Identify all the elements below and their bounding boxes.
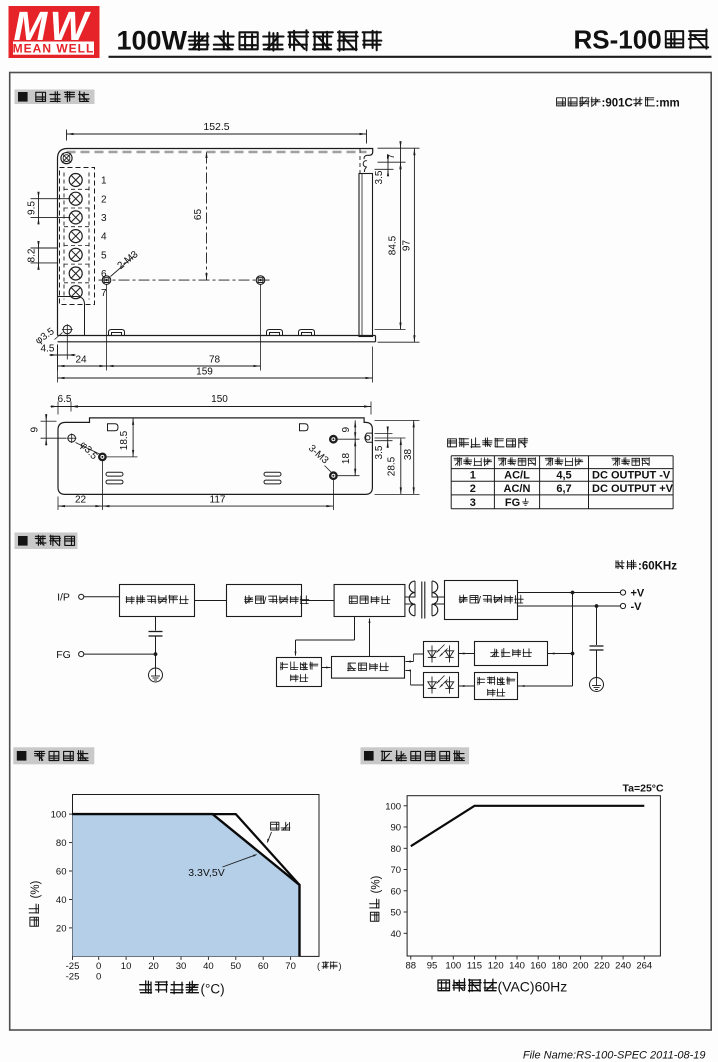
- svg-text:20: 20: [56, 923, 67, 934]
- svg-text:152.5: 152.5: [203, 121, 229, 133]
- svg-text:+V: +V: [631, 588, 645, 600]
- svg-text:159: 159: [196, 367, 213, 378]
- svg-text:9: 9: [341, 426, 352, 432]
- svg-text:100: 100: [51, 810, 67, 821]
- svg-text:65: 65: [193, 209, 204, 221]
- svg-text:100: 100: [445, 961, 461, 972]
- svg-text:97: 97: [402, 240, 413, 252]
- svg-text:2: 2: [101, 194, 107, 205]
- svg-text:140: 140: [509, 961, 525, 972]
- svg-text:200: 200: [573, 961, 589, 972]
- svg-text:60: 60: [56, 867, 67, 878]
- svg-text:88: 88: [406, 961, 417, 972]
- svg-text:20: 20: [148, 961, 159, 972]
- svg-text:24: 24: [75, 355, 87, 366]
- svg-text:220: 220: [594, 961, 610, 972]
- svg-text:117: 117: [210, 495, 226, 506]
- svg-text:3.5: 3.5: [374, 445, 385, 459]
- svg-text:30: 30: [176, 961, 187, 972]
- svg-text::60KHz: :60KHz: [638, 561, 677, 573]
- svg-text:AC/L: AC/L: [504, 470, 530, 482]
- svg-text:6.5: 6.5: [58, 394, 72, 405]
- svg-text:3.5: 3.5: [374, 170, 385, 184]
- svg-text:18.5: 18.5: [119, 430, 130, 450]
- svg-text:120: 120: [488, 961, 504, 972]
- svg-text:264: 264: [636, 961, 652, 972]
- svg-text:FG: FG: [505, 497, 520, 509]
- svg-text:DC OUTPUT +V: DC OUTPUT +V: [592, 483, 674, 495]
- svg-text:File Name:RS-100-SPEC 2011-0: File Name:RS-100-SPEC 2011-08-19: [523, 1050, 706, 1062]
- svg-text:80: 80: [391, 844, 402, 855]
- svg-text:FG: FG: [56, 649, 71, 661]
- svg-text:84.5: 84.5: [388, 235, 399, 255]
- svg-text:240: 240: [615, 961, 631, 972]
- svg-text:115: 115: [467, 961, 482, 972]
- svg-text:I/P: I/P: [57, 592, 70, 604]
- svg-text:3.3V,5V: 3.3V,5V: [188, 867, 224, 879]
- svg-text:150: 150: [211, 394, 228, 405]
- svg-text:40: 40: [391, 929, 402, 940]
- svg-text:100W: 100W: [117, 26, 188, 56]
- svg-text:100: 100: [385, 801, 401, 812]
- svg-text:(: (: [317, 961, 320, 971]
- svg-text:22: 22: [75, 495, 87, 506]
- svg-text:): ): [339, 961, 342, 971]
- svg-text:70: 70: [391, 865, 402, 876]
- svg-text:95: 95: [427, 961, 438, 972]
- svg-text:Ta=25°C: Ta=25°C: [623, 783, 664, 795]
- svg-text:(%): (%): [30, 880, 42, 898]
- svg-text:90: 90: [391, 823, 402, 834]
- svg-text::901C: :901C: [602, 98, 633, 110]
- svg-text:RS-100: RS-100: [574, 25, 662, 55]
- svg-text:/: /: [264, 596, 267, 607]
- svg-text:60: 60: [258, 961, 269, 972]
- svg-text:0: 0: [96, 961, 101, 972]
- svg-text:60: 60: [391, 886, 402, 897]
- svg-text:MEAN WELL: MEAN WELL: [13, 42, 95, 56]
- svg-text:-25: -25: [66, 961, 80, 972]
- svg-text:38: 38: [403, 449, 414, 461]
- svg-text:8.2: 8.2: [27, 248, 38, 262]
- svg-text:40: 40: [203, 961, 214, 972]
- svg-text:6,7: 6,7: [556, 483, 571, 495]
- svg-text:2: 2: [470, 483, 476, 495]
- svg-text::mm: :mm: [656, 98, 680, 110]
- svg-text:9.5: 9.5: [27, 201, 38, 215]
- svg-text:/: /: [478, 596, 481, 607]
- svg-text:50: 50: [231, 961, 242, 972]
- svg-text:4,5: 4,5: [556, 470, 571, 482]
- svg-text:1: 1: [470, 470, 476, 482]
- svg-text:4.5: 4.5: [41, 344, 55, 355]
- svg-text:40: 40: [56, 895, 67, 906]
- svg-text:180: 180: [551, 961, 567, 972]
- svg-text:1: 1: [101, 176, 107, 187]
- svg-text:(°C): (°C): [201, 982, 225, 997]
- svg-text:(%): (%): [371, 875, 383, 893]
- svg-text:50: 50: [391, 908, 402, 919]
- svg-text:0: 0: [96, 971, 101, 982]
- svg-text:DC OUTPUT -V: DC OUTPUT -V: [592, 470, 671, 482]
- svg-text:-25: -25: [66, 971, 80, 982]
- svg-text:9: 9: [30, 426, 41, 432]
- svg-text:3: 3: [101, 213, 107, 224]
- svg-text:5: 5: [101, 250, 107, 261]
- svg-text:70: 70: [285, 961, 296, 972]
- svg-text:18: 18: [341, 453, 352, 465]
- svg-text:(VAC)60Hz: (VAC)60Hz: [498, 979, 568, 995]
- svg-text:AC/N: AC/N: [504, 483, 531, 495]
- svg-text:28.5: 28.5: [387, 456, 398, 476]
- svg-text:4: 4: [101, 232, 107, 243]
- svg-text:78: 78: [209, 355, 221, 366]
- svg-text:-V: -V: [631, 601, 643, 613]
- svg-text:10: 10: [121, 961, 132, 972]
- svg-text:3: 3: [470, 497, 476, 509]
- svg-text:80: 80: [56, 838, 67, 849]
- svg-text:160: 160: [530, 961, 546, 972]
